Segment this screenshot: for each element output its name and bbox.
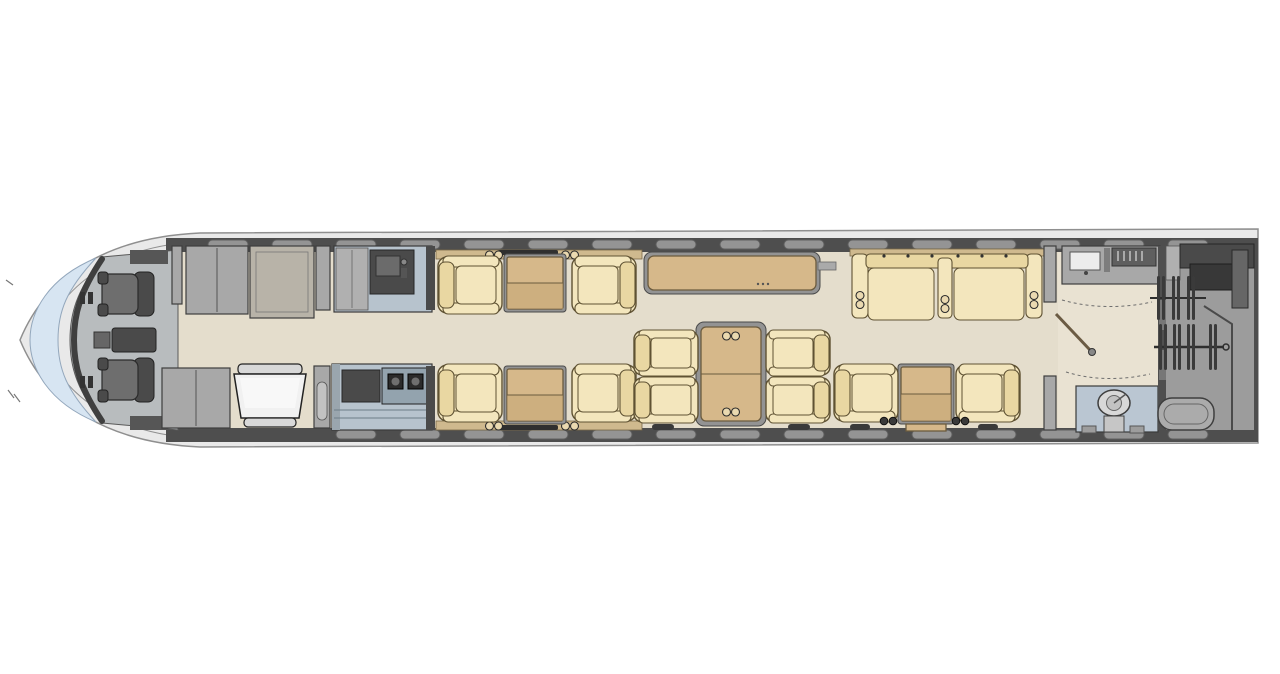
rudder-pedals-top [80, 292, 85, 304]
ledge-trim-bottom [498, 425, 558, 430]
galley-sink [376, 256, 400, 276]
aft-club-seat-left [834, 364, 898, 422]
galley-faucet [401, 259, 407, 265]
aft-club-seat-right [956, 364, 1020, 422]
galley-appliance [342, 370, 380, 402]
platform-step [1082, 426, 1096, 433]
seat-track-mark [850, 424, 870, 430]
credenza-detail-dot [762, 283, 764, 285]
divan-zone [850, 249, 1044, 320]
divan-button [882, 254, 885, 257]
crew-seat-bottom [98, 358, 154, 402]
dining-seat-right-outboard [766, 377, 830, 423]
conference-table [696, 322, 766, 426]
throttle-quadrant [94, 332, 110, 348]
floor-latch [952, 417, 960, 425]
entry-pillar-top [316, 246, 330, 310]
divan-cushion-right [954, 268, 1024, 320]
center-pedestal [112, 328, 156, 352]
door-bottom-rail [244, 418, 296, 427]
credenza-zone [644, 252, 836, 294]
rudder-pedals-bottom [80, 376, 85, 388]
lav-partition-top [1044, 246, 1056, 302]
seat-track-mark [788, 424, 810, 430]
dining-seat-right-inboard [766, 330, 830, 376]
dining-seat-left-inboard [634, 330, 698, 376]
club-seat-fwd-top-left [438, 256, 502, 314]
galley-partition-bottom [426, 366, 435, 430]
baggage-shelf [1166, 246, 1180, 280]
credenza-connector [818, 262, 836, 270]
seat-track-mark [652, 424, 674, 430]
credenza-detail-dot [757, 283, 759, 285]
lav-partition-bottom [1044, 376, 1056, 430]
conference-zone [634, 322, 830, 430]
divan-button [956, 254, 959, 257]
entry-airstair-door [234, 364, 306, 427]
toilet-base [1104, 416, 1124, 432]
floorplan-canvas [0, 0, 1280, 674]
forward-side-table-top [504, 254, 566, 312]
lav-sink [1070, 252, 1100, 270]
baggage-bench [1158, 398, 1214, 430]
club-seat-fwd-bottom-right [572, 364, 636, 422]
credenza-detail-dot [767, 283, 769, 285]
lavatory-zone [1044, 246, 1168, 433]
floor-latch [961, 417, 969, 425]
divan-button [1004, 254, 1007, 257]
club-seat-fwd-top-right [572, 256, 636, 314]
door-top-rail [238, 364, 302, 374]
credenza-top [648, 256, 816, 290]
forward-closet-2 [250, 246, 314, 318]
seat-track-mark [978, 424, 998, 430]
aft-club-zone [834, 364, 1020, 431]
lav-door-knob [1089, 349, 1096, 356]
rudder-pedal [88, 376, 93, 388]
burner-center [412, 378, 420, 386]
rudder-pedal [88, 292, 93, 304]
floor-latch [880, 417, 888, 425]
lav-faucet [1084, 271, 1088, 275]
divan-cushion-left [868, 268, 934, 320]
floor-latch [889, 417, 897, 425]
galley-partition-top [426, 246, 435, 310]
burner-center [392, 378, 400, 386]
divan-button [906, 254, 909, 257]
forward-side-table-bottom [504, 366, 566, 424]
baggage-tall-cabinet [1232, 250, 1248, 308]
door-panel-highlight [240, 378, 300, 408]
pillar-inset [317, 382, 327, 420]
faucet-spout [401, 268, 407, 278]
cockpit-side-console-top [130, 250, 168, 264]
aft-side-table [898, 364, 954, 431]
divan-button [930, 254, 933, 257]
cockpit-divider [172, 246, 182, 304]
dining-seat-left-outboard [634, 377, 698, 423]
platform-step [1130, 426, 1144, 433]
vanity-divider [1104, 248, 1110, 272]
divan-button [980, 254, 983, 257]
galley-lower-edge [332, 364, 340, 430]
club-seat-fwd-bottom-left [438, 364, 502, 422]
crew-seat-top [98, 272, 154, 316]
